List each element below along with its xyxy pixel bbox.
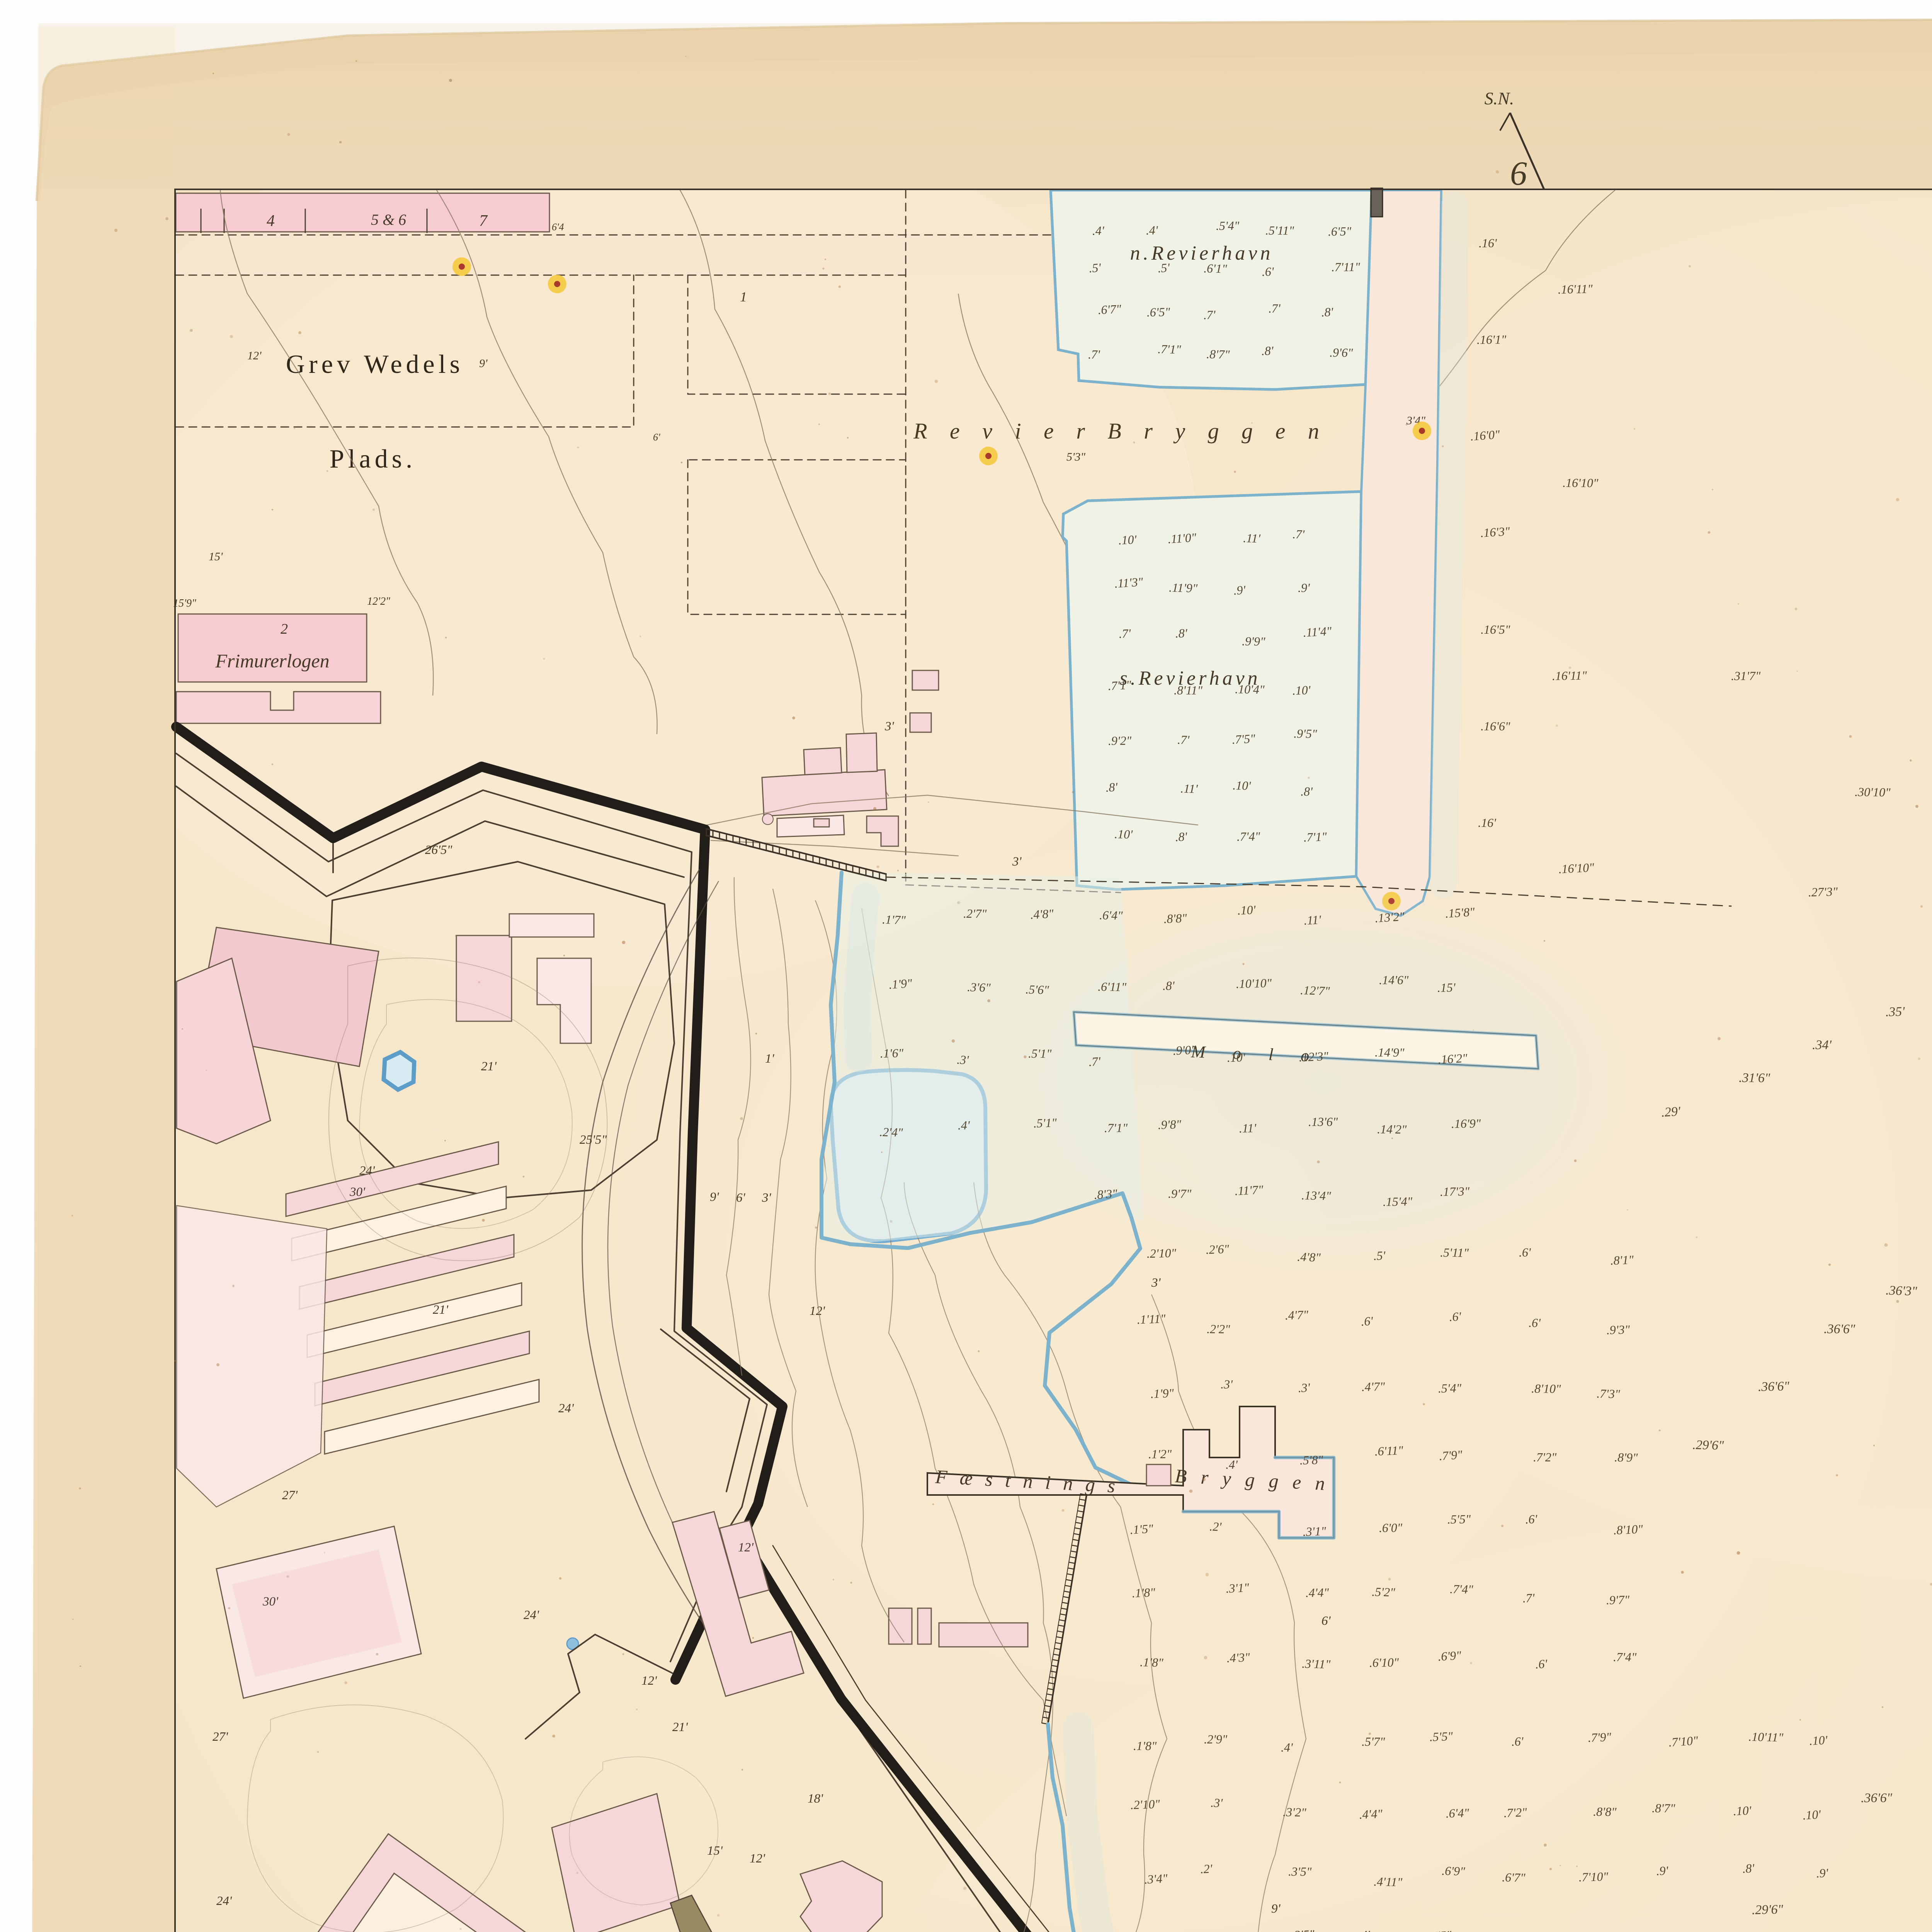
svg-text:.15'8": .15'8": [1445, 905, 1475, 920]
svg-text:.7': .7': [1203, 308, 1216, 322]
svg-text:.2'10": .2'10": [1146, 1246, 1177, 1260]
svg-text:.34': .34': [1812, 1038, 1832, 1052]
svg-text:6': 6': [1321, 1614, 1331, 1628]
svg-text:.5'4": .5'4": [1216, 219, 1240, 233]
svg-text:12': 12': [641, 1674, 657, 1688]
svg-text:.7'5": .7'5": [1231, 731, 1256, 747]
svg-text:.29': .29': [1661, 1104, 1681, 1120]
svg-text:3': 3': [762, 1191, 772, 1205]
svg-text:.3'11": .3'11": [1302, 1656, 1331, 1671]
svg-text:.10': .10': [1233, 778, 1252, 793]
svg-text:.31'7": .31'7": [1731, 669, 1761, 683]
svg-text:.10': .10': [1802, 1807, 1821, 1822]
svg-text:.6'7": .6'7": [1502, 1870, 1526, 1884]
svg-text:.5': .5': [1088, 260, 1102, 275]
svg-text:.29'6": .29'6": [1752, 1902, 1784, 1917]
svg-text:.31'6": .31'6": [1739, 1071, 1770, 1085]
svg-text:.10'10": .10'10": [1236, 976, 1272, 991]
svg-text:.7'10": .7'10": [1578, 1869, 1609, 1884]
svg-text:.16': .16': [1478, 816, 1497, 830]
svg-text:.7'9": .7'9": [1588, 1730, 1612, 1745]
svg-text:.9'2": .9'2": [1108, 733, 1132, 748]
svg-text:.7': .7': [1269, 301, 1281, 315]
svg-text:9': 9': [710, 1190, 719, 1204]
svg-text:21': 21': [433, 1303, 449, 1317]
svg-text:.16'1": .16'1": [1477, 332, 1507, 347]
svg-text:24': 24': [216, 1894, 232, 1908]
svg-text:.4': .4': [1358, 1928, 1371, 1932]
svg-text:.5'4": .5'4": [1438, 1381, 1462, 1395]
svg-text:.5'2": .5'2": [1372, 1585, 1396, 1599]
svg-text:.2'9": .2'9": [1204, 1732, 1228, 1746]
svg-text:.8': .8': [1175, 626, 1188, 640]
svg-text:.1'7": .1'7": [882, 912, 906, 927]
svg-text:.7': .7': [1088, 1054, 1101, 1069]
svg-text:7: 7: [479, 212, 488, 230]
svg-text:.7'4": .7'4": [1237, 829, 1260, 844]
svg-text:.16'2": .16'2": [1437, 1051, 1468, 1066]
svg-text:12'2": 12'2": [367, 595, 390, 607]
svg-text:.4': .4': [1206, 1930, 1219, 1932]
svg-text:.3': .3': [1221, 1377, 1233, 1391]
svg-text:.13'2": .13'2": [1374, 909, 1405, 925]
svg-text:15': 15': [707, 1844, 723, 1858]
svg-text:5 & 6: 5 & 6: [371, 211, 406, 228]
svg-text:.8': .8': [1742, 1861, 1755, 1876]
svg-text:.15'4": .15'4": [1383, 1194, 1413, 1209]
svg-text:.9': .9': [1298, 581, 1310, 595]
svg-text:.7'1": .7'1": [1107, 678, 1132, 693]
svg-text:.8'9": .8'9": [1614, 1450, 1638, 1464]
svg-text:6'4: 6'4: [552, 221, 564, 233]
svg-text:Plads.: Plads.: [330, 444, 416, 473]
svg-text:.11'3": .11'3": [1114, 575, 1144, 590]
svg-text:.9'9": .9'9": [1242, 634, 1265, 648]
svg-text:.7'10": .7'10": [1668, 1733, 1699, 1749]
svg-text:.8'7": .8'7": [1206, 347, 1230, 361]
svg-text:.9': .9': [1816, 1866, 1829, 1880]
svg-text:.13'6": .13'6": [1308, 1115, 1338, 1129]
svg-text:.1'5": .1'5": [1129, 1521, 1154, 1537]
svg-text:.10': .10': [1809, 1733, 1828, 1748]
svg-text:.6'9": .6'9": [1437, 1648, 1462, 1663]
svg-text:.11': .11': [1239, 1121, 1257, 1135]
svg-text:.3'5": .3'5": [1288, 1864, 1312, 1878]
svg-text:.9'5": .9'5": [1294, 726, 1317, 741]
svg-text:.16'0": .16'0": [1470, 427, 1500, 443]
svg-text:.5': .5': [1157, 260, 1170, 275]
svg-text:.1'11": .1'11": [1137, 1311, 1166, 1327]
svg-text:Grev Wedels: Grev Wedels: [286, 349, 464, 379]
svg-text:.6'4": .6'4": [1099, 908, 1123, 922]
svg-text:.11'0": .11'0": [1167, 530, 1197, 546]
svg-text:.17'3": .17'3": [1440, 1184, 1470, 1199]
svg-text:.8'8": .8'8": [1593, 1804, 1617, 1819]
svg-text:.8': .8': [1321, 305, 1334, 319]
svg-text:.16'11": .16'11": [1558, 282, 1593, 296]
svg-text:.7'4": .7'4": [1450, 1582, 1474, 1596]
svg-text:.10': .10': [1733, 1803, 1752, 1818]
svg-text:.3': .3': [957, 1053, 969, 1067]
svg-text:21': 21': [481, 1060, 497, 1073]
svg-text:.14'9": .14'9": [1375, 1045, 1405, 1060]
svg-text:.8'1": .8'1": [1610, 1253, 1634, 1267]
svg-text:26'5": 26'5": [425, 843, 452, 857]
svg-text:21': 21': [672, 1720, 688, 1734]
svg-text:R e v i e r B r y g g e n: R e v i e r B r y g g e n: [913, 418, 1328, 444]
svg-text:.36'6": .36'6": [1758, 1379, 1790, 1394]
svg-text:.29'6": .29'6": [1692, 1438, 1725, 1453]
svg-text:24': 24': [524, 1608, 539, 1622]
svg-text:.16'5": .16'5": [1481, 622, 1510, 636]
svg-text:.16'11": .16'11": [1552, 668, 1587, 683]
svg-text:.6': .6': [1535, 1656, 1548, 1671]
svg-text:.27'3": .27'3": [1808, 884, 1838, 899]
svg-text:1': 1': [765, 1052, 775, 1066]
svg-text:4: 4: [267, 212, 275, 230]
svg-text:.11'4": .11'4": [1303, 624, 1332, 639]
svg-text:.1'8": .1'8": [1133, 1739, 1157, 1753]
svg-text:.14'2": .14'2": [1377, 1122, 1407, 1136]
svg-text:.5'8": .5'8": [1299, 1453, 1323, 1467]
svg-text:.7'4": .7'4": [1613, 1650, 1637, 1664]
svg-text:.4'7": .4'7": [1285, 1308, 1309, 1322]
svg-text:S.N.: S.N.: [1485, 88, 1514, 108]
svg-text:.30'10": .30'10": [1855, 785, 1891, 799]
svg-text:.4'8": .4'8": [1297, 1250, 1321, 1264]
svg-text:.9'7": .9'7": [1606, 1593, 1630, 1607]
svg-text:.6'10": .6'10": [1369, 1655, 1399, 1670]
svg-text:.11'7": .11'7": [1235, 1182, 1264, 1198]
svg-text:.8': .8': [1105, 780, 1118, 794]
svg-text:.11': .11': [1243, 531, 1261, 545]
svg-text:.10': .10': [1227, 1050, 1246, 1065]
svg-text:.1'9": .1'9": [1150, 1386, 1174, 1401]
svg-text:.6': .6': [1361, 1314, 1374, 1328]
svg-text:.10': .10': [1292, 683, 1311, 697]
svg-text:.6': .6': [1449, 1309, 1462, 1324]
svg-text:30': 30': [262, 1595, 279, 1609]
svg-text:.7'1": .7'1": [1104, 1121, 1128, 1135]
svg-text:.6': .6': [1529, 1316, 1541, 1330]
svg-text:15'9": 15'9": [173, 597, 196, 609]
svg-text:.9'0": .9'0": [1173, 1043, 1197, 1058]
svg-text:.16'3": .16'3": [1480, 524, 1510, 540]
svg-text:.8': .8': [1175, 829, 1188, 844]
svg-text:.12'3": .12'3": [1299, 1049, 1329, 1064]
svg-text:.10': .10': [1114, 827, 1133, 841]
svg-text:3': 3': [884, 719, 895, 733]
svg-text:.4': .4': [1092, 223, 1105, 238]
svg-text:.5'1": .5'1": [1028, 1046, 1052, 1061]
svg-text:.7'3": .7'3": [1597, 1386, 1621, 1401]
svg-text:.5'11": .5'11": [1265, 223, 1294, 237]
svg-text:.5'11": .5'11": [1440, 1245, 1469, 1260]
svg-text:25'5": 25'5": [580, 1133, 607, 1147]
svg-text:.1'6": .1'6": [880, 1046, 904, 1060]
svg-text:.2'7": .2'7": [963, 906, 987, 920]
svg-text:.10': .10': [1237, 903, 1256, 917]
svg-text:.3'1": .3'1": [1225, 1580, 1250, 1595]
svg-text:.4': .4': [1281, 1740, 1293, 1754]
svg-text:27': 27': [213, 1730, 228, 1744]
svg-text:.8'7": .8'7": [1652, 1801, 1675, 1815]
svg-text:.1'9": .1'9": [888, 976, 913, 992]
svg-text:.2'10": .2'10": [1130, 1797, 1160, 1812]
svg-text:.9': .9': [1233, 583, 1246, 597]
svg-text:.6': .6': [1519, 1245, 1531, 1259]
svg-text:.3'5": .3'5": [1291, 1927, 1315, 1932]
svg-text:.11': .11': [1303, 913, 1322, 927]
svg-text:.6'7": .6'7": [1098, 302, 1122, 317]
svg-text:.4': .4': [1146, 223, 1158, 237]
svg-text:.3'1": .3'1": [1303, 1524, 1327, 1539]
svg-text:.7': .7': [1088, 347, 1100, 361]
svg-text:.10'11": .10'11": [1748, 1730, 1784, 1744]
svg-text:.2': .2': [1209, 1519, 1222, 1534]
svg-text:.16'10": .16'10": [1558, 860, 1595, 876]
svg-text:.1'8": .1'8": [1140, 1655, 1164, 1670]
svg-text:Frimurerlogen: Frimurerlogen: [215, 650, 329, 672]
svg-text:.4'4": .4'4": [1305, 1585, 1329, 1600]
svg-text:.9'6": .9'6": [1330, 345, 1353, 359]
svg-text:.6'5": .6'5": [1146, 305, 1170, 319]
svg-text:.16'9": .16'9": [1451, 1116, 1481, 1131]
svg-text:12': 12': [738, 1541, 754, 1554]
svg-text:1: 1: [740, 289, 747, 304]
svg-text:.9': .9': [1728, 1929, 1741, 1932]
svg-text:6: 6: [1510, 155, 1527, 192]
svg-text:.16'10": .16'10": [1563, 476, 1599, 490]
svg-text:.9'7": .9'7": [1168, 1187, 1192, 1201]
svg-text:12': 12': [750, 1852, 765, 1866]
svg-text:.8'10": .8'10": [1531, 1381, 1561, 1396]
svg-text:.7'1": .7'1": [1303, 829, 1327, 844]
svg-text:.4'3": .4'3": [1226, 1650, 1250, 1665]
svg-text:.2'6": .2'6": [1206, 1242, 1230, 1257]
svg-text:.3'2": .3'2": [1283, 1805, 1307, 1819]
svg-text:.3'6": .3'6": [967, 980, 991, 995]
svg-text:.7': .7': [1119, 626, 1131, 641]
svg-text:.8': .8': [1162, 978, 1175, 993]
svg-text:.7'1": .7'1": [1158, 342, 1182, 356]
svg-text:15': 15': [209, 550, 223, 563]
svg-text:.6'9": .6'9": [1442, 1864, 1466, 1878]
svg-text:.6'5": .6'5": [1328, 224, 1352, 238]
svg-text:.16': .16': [1479, 236, 1497, 250]
svg-text:27': 27': [282, 1488, 298, 1502]
svg-text:.7'2": .7'2": [1533, 1450, 1557, 1464]
svg-text:.36'3": .36'3": [1886, 1283, 1918, 1299]
svg-text:24': 24': [359, 1164, 375, 1178]
svg-text:.2'4": .2'4": [879, 1125, 903, 1139]
svg-text:6': 6': [736, 1191, 746, 1205]
svg-text:.4': .4': [958, 1118, 970, 1132]
svg-text:.15': .15': [1437, 980, 1456, 995]
svg-text:.4': .4': [1226, 1458, 1238, 1471]
svg-text:.7'11": .7'11": [1332, 260, 1361, 274]
svg-text:.6': .6': [1525, 1512, 1538, 1526]
svg-text:5'3": 5'3": [1066, 451, 1085, 463]
svg-text:.6': .6': [1262, 264, 1274, 279]
svg-text:.5'6": .5'6": [1026, 982, 1049, 997]
svg-text:.7'9": .7'9": [1439, 1447, 1463, 1463]
svg-text:.8': .8': [1261, 344, 1274, 358]
svg-text:.7': .7': [1522, 1591, 1535, 1605]
svg-text:.9'8": .9'8": [1158, 1117, 1182, 1132]
svg-text:24': 24': [558, 1401, 574, 1415]
svg-text:.6'11": .6'11": [1374, 1443, 1404, 1458]
svg-text:12': 12': [810, 1304, 825, 1318]
svg-text:.5'1": .5'1": [1033, 1116, 1057, 1130]
svg-text:.10'4": .10'4": [1235, 682, 1265, 696]
svg-text:.7'2": .7'2": [1503, 1805, 1527, 1820]
svg-text:.8': .8': [1301, 784, 1313, 798]
svg-text:.6': .6': [1511, 1734, 1524, 1748]
svg-text:3': 3': [1012, 855, 1022, 869]
svg-text:.7': .7': [1177, 733, 1190, 747]
svg-text:.3'4": .3'4": [1144, 1871, 1168, 1886]
svg-text:.5'7": .5'7": [1362, 1735, 1385, 1748]
svg-text:.6'4": .6'4": [1446, 1806, 1469, 1820]
svg-text:30': 30': [349, 1185, 366, 1199]
svg-text:.5'5": .5'5": [1447, 1512, 1471, 1526]
svg-text:.8'11": .8'11": [1174, 683, 1203, 697]
svg-text:.1'8": .1'8": [1132, 1585, 1156, 1600]
svg-text:.10': .10': [1118, 532, 1138, 547]
svg-text:2: 2: [281, 621, 288, 637]
svg-text:.8'10": .8'10": [1613, 1522, 1643, 1537]
svg-text:.2'2": .2'2": [1207, 1322, 1230, 1336]
svg-text:6': 6': [653, 432, 660, 443]
svg-text:.2': .2': [1200, 1862, 1213, 1876]
svg-text:9': 9': [1271, 1902, 1281, 1916]
svg-text:.8'8": .8'8": [1163, 911, 1187, 926]
svg-text:.4'4": .4'4": [1359, 1806, 1383, 1821]
svg-text:.35': .35': [1885, 1004, 1905, 1019]
svg-text:12': 12': [247, 349, 262, 362]
svg-text:.3': .3': [1211, 1796, 1223, 1810]
svg-text:.11': .11': [1180, 781, 1199, 796]
svg-text:.6'1": .6'1": [1204, 261, 1228, 276]
svg-text:.13'4": .13'4": [1301, 1188, 1332, 1203]
svg-text:.4'7": .4'7": [1361, 1379, 1385, 1394]
svg-text:18': 18': [808, 1792, 823, 1806]
svg-text:.6'11": .6'11": [1098, 980, 1127, 994]
svg-text:.5'5": .5'5": [1429, 1729, 1453, 1744]
svg-text:.8'3": .8'3": [1094, 1186, 1118, 1202]
svg-text:.4'11": .4'11": [1374, 1874, 1403, 1889]
svg-text:n.Revierhavn: n.Revierhavn: [1130, 242, 1274, 264]
svg-text:.9'3": .9'3": [1606, 1322, 1630, 1337]
svg-text:.11'9": .11'9": [1169, 580, 1198, 595]
svg-text:.9': .9': [1656, 1864, 1669, 1878]
svg-text:.4'8": .4'8": [1030, 906, 1054, 922]
svg-text:.12'7": .12'7": [1300, 983, 1330, 998]
svg-text:.7': .7': [1293, 527, 1305, 541]
svg-text:.1'2": .1'2": [1148, 1447, 1172, 1461]
svg-text:.14'6": .14'6": [1379, 973, 1409, 987]
svg-text:9': 9': [479, 357, 488, 370]
svg-text:.3': .3': [1298, 1380, 1311, 1395]
svg-text:.36'6": .36'6": [1824, 1322, 1855, 1337]
svg-text:.16'6": .16'6": [1481, 719, 1510, 733]
svg-text:3': 3': [1151, 1276, 1161, 1290]
svg-text:.5': .5': [1373, 1248, 1386, 1263]
svg-text:.6'0": .6'0": [1379, 1520, 1403, 1535]
svg-text:.36'6": .36'6": [1861, 1791, 1893, 1805]
